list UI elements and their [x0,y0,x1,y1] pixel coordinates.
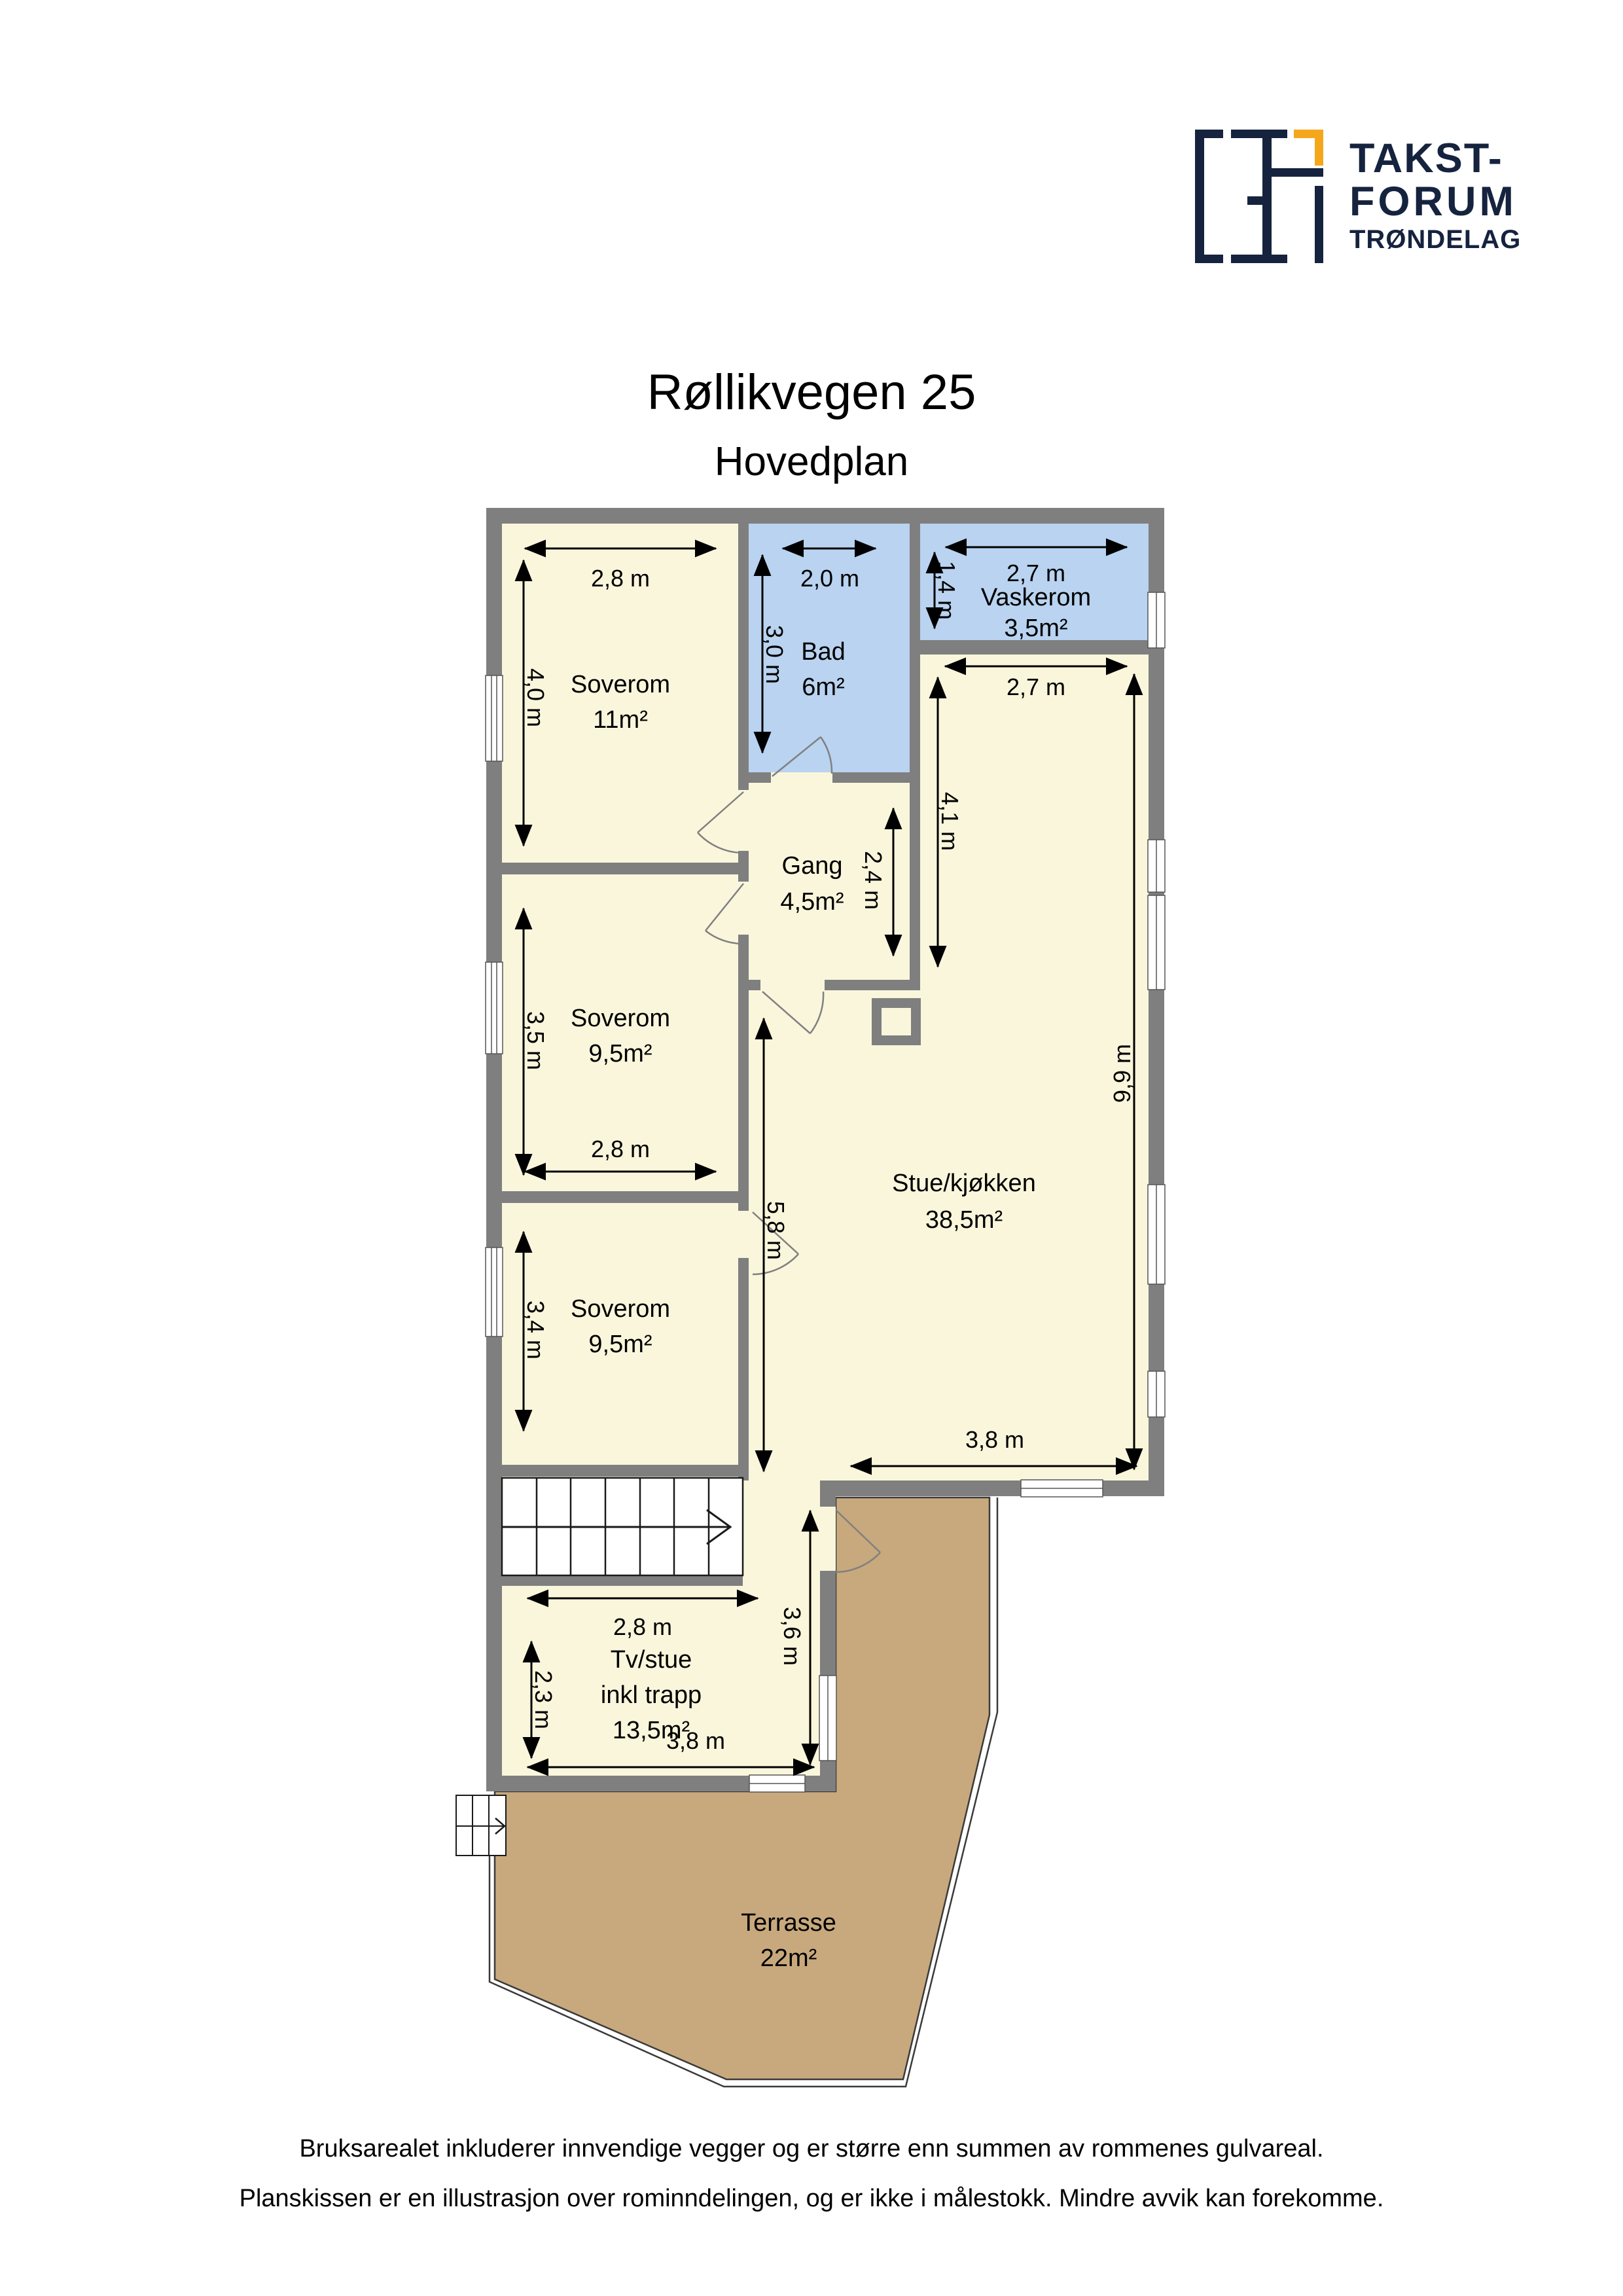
dim-label-hall-h: 5,8 m [762,1201,789,1260]
stairs-main [502,1478,743,1575]
dim-label-vask-w: 2,7 m [1007,560,1065,586]
dim-label-stue-h-upper: 4,1 m [936,792,963,851]
wall-sov1-bottom [486,863,749,874]
room-label-terrasse-name: Terrasse [741,1909,836,1937]
wall-sov3-bottom [486,1465,749,1477]
wall-bad-stue [910,524,920,990]
room-label-sov2-area: 9,5m² [588,1040,652,1067]
wall-vaskerom-bottom [910,640,1164,655]
dim-label-gang-h: 2,4 m [860,851,887,910]
door-opening-sov3 [738,1211,749,1258]
dim-label-tv-w: 2,8 m [613,1613,672,1640]
dim-label-sov2-w: 2,8 m [591,1136,650,1162]
door-opening-terrace [820,1507,836,1571]
dim-label-tv-h: 2,3 m [530,1670,557,1729]
wall-sov2-bottom [486,1191,749,1203]
room-label-sov2-name: Soverom [571,1005,670,1032]
dim-label-tv-right-h: 3,6 m [779,1607,806,1666]
room-label-stue-area: 38,5m² [925,1206,1003,1234]
dim-label-sov1-h: 4,0 m [522,668,549,727]
floor-plan: 2,8 m 2,0 m 2,7 m 2,7 m 2,8 m 2,8 m 3,8 … [0,0,1623,2296]
door-opening-sov2 [738,882,749,935]
room-label-stue-name: Stue/kjøkken [892,1170,1036,1197]
dim-label-sov2-h: 3,5 m [522,1011,549,1070]
room-label-gang-name: Gang [782,852,843,880]
wall-right [1149,508,1164,1496]
room-label-sov1-area: 11m² [593,706,648,734]
chimney [872,998,921,1045]
footer-disclaimer-line2: Planskissen er en illustrasjon over romi… [0,2185,1623,2213]
wall-bedrooms-corridor [738,524,749,1480]
dim-label-stue-h: 9,9 m [1109,1044,1135,1103]
room-label-tv-area: 13,5m² [613,1717,690,1744]
dim-label-sov3-h: 3,4 m [522,1300,549,1359]
wall-under-stairs [486,1575,743,1586]
wall-stue-bottom [820,1480,1164,1496]
room-label-vask-name: Vaskerom [981,584,1091,611]
dim-label-bad-h: 3,0 m [761,625,788,684]
dim-label-stue-w: 2,7 m [1007,673,1065,700]
dim-label-bad-w: 2,0 m [800,565,859,592]
room-label-sov1-name: Soverom [571,671,670,698]
room-label-terrasse-area: 22m² [760,1945,817,1972]
window [486,962,503,1054]
dim-label-stue-bottom-w: 3,8 m [965,1426,1024,1453]
footer-disclaimer-line1: Bruksarealet inkluderer innvendige vegge… [0,2135,1623,2163]
stairs-exterior [456,1795,506,1856]
door-opening-bad [771,772,832,783]
window [486,1247,503,1336]
room-label-gang-area: 4,5m² [780,888,844,916]
room-label-sov3-area: 9,5m² [588,1331,652,1358]
room-label-tv-name: Tv/stue [611,1646,692,1674]
room-label-bad-name: Bad [801,638,846,666]
chimney-inner [882,1008,911,1035]
room-label-sov3-name: Soverom [571,1295,670,1323]
wall-top [486,508,1164,524]
room-label-tv-name2: inkl trapp [601,1681,702,1709]
dim-label-sov1-w: 2,8 m [591,565,650,592]
door-opening-sov1 [738,790,749,851]
dim-label-vask-h: 1,4 m [933,561,960,620]
window [486,675,503,761]
room-label-vask-area: 3,5m² [1004,615,1067,642]
room-label-bad-area: 6m² [802,673,844,701]
door-opening-gang [760,980,825,990]
